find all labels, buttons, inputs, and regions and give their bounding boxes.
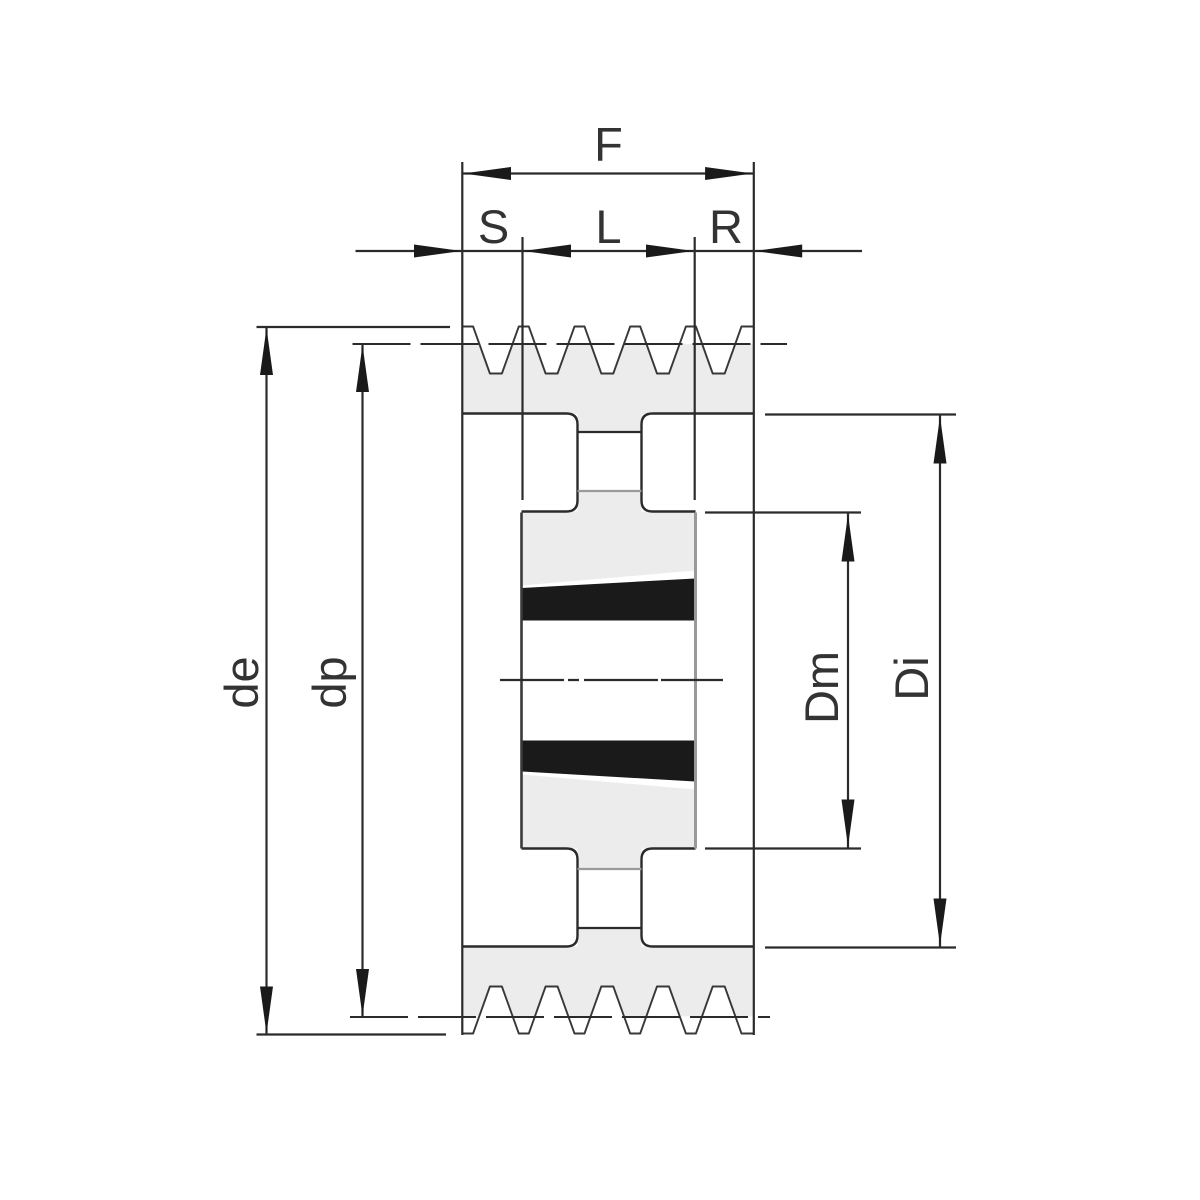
svg-text:Di: Di bbox=[885, 656, 938, 700]
svg-text:L: L bbox=[595, 200, 621, 253]
svg-text:R: R bbox=[709, 200, 743, 253]
svg-text:de: de bbox=[215, 656, 268, 708]
svg-text:Dm: Dm bbox=[795, 651, 848, 724]
svg-text:F: F bbox=[594, 118, 623, 171]
svg-text:S: S bbox=[478, 200, 509, 253]
svg-text:dp: dp bbox=[303, 656, 356, 708]
